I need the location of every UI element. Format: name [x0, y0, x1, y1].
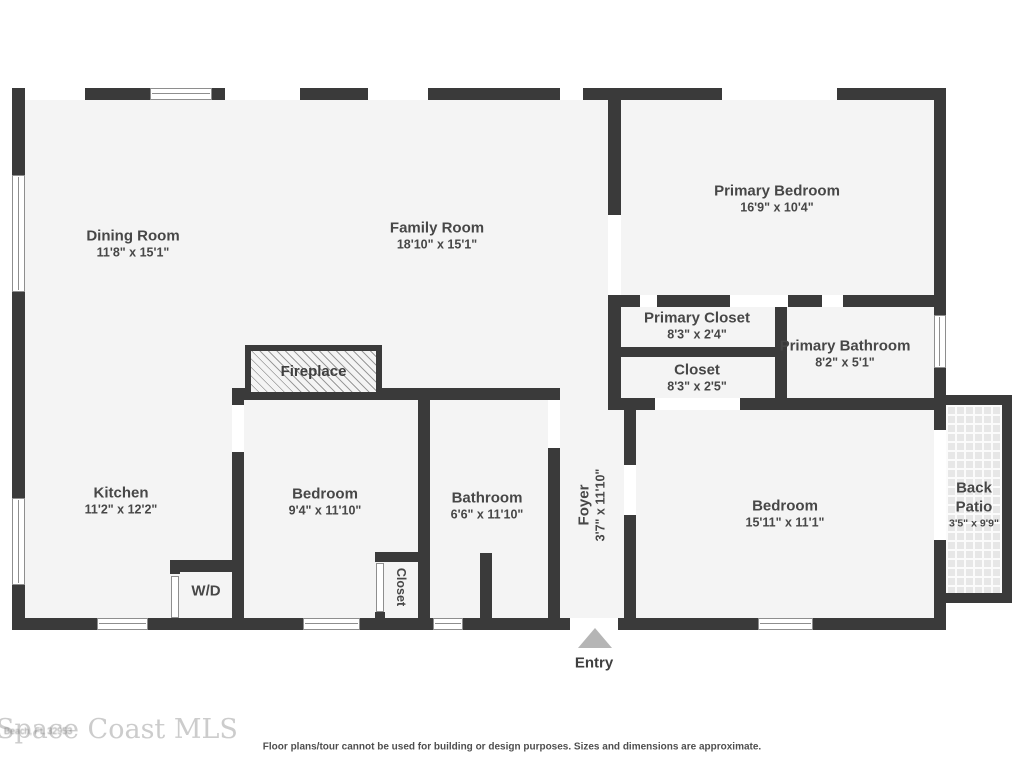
- floor-plan: Fireplace Dining Room 11'8" x 15'1" Fami…: [0, 0, 1024, 768]
- room-label-hall-closet: Closet 8'3" x 2'5": [667, 361, 727, 395]
- wall: [463, 618, 570, 630]
- wall: [624, 515, 636, 618]
- window: [303, 618, 360, 630]
- room-label-bathroom: Bathroom 6'6" x 11'10": [451, 489, 524, 523]
- wall: [360, 618, 433, 630]
- window: [150, 88, 212, 100]
- small-closet-label: Closet: [393, 568, 409, 606]
- wall: [608, 100, 621, 215]
- entry-arrow-icon: [578, 628, 612, 648]
- room-label-back-patio: Back Patio 3'5" x 9'9": [948, 479, 1000, 530]
- fireplace-label: Fireplace: [281, 363, 347, 380]
- door-opening: [640, 295, 657, 307]
- door-opening: [608, 215, 621, 295]
- wall: [608, 347, 787, 357]
- wall: [12, 292, 25, 498]
- door-opening: [548, 398, 560, 448]
- window: [12, 175, 25, 292]
- window: [934, 315, 946, 368]
- window: [758, 618, 813, 630]
- wall: [934, 540, 946, 630]
- door-opening: [232, 405, 244, 452]
- wall: [1002, 395, 1012, 603]
- wall: [148, 618, 303, 630]
- wall: [934, 88, 946, 315]
- wall: [232, 388, 244, 405]
- wall: [813, 618, 946, 630]
- wall: [618, 618, 758, 630]
- wall: [657, 295, 730, 307]
- wall: [788, 295, 822, 307]
- room-label-kitchen: Kitchen 11'2" x 12'2": [85, 484, 158, 518]
- window: [433, 618, 463, 630]
- door-opening: [655, 398, 740, 410]
- room-label-primary-bathroom: Primary Bathroom 8'2" x 5'1": [780, 337, 911, 371]
- door-opening: [730, 295, 788, 307]
- wall: [12, 618, 97, 630]
- room-label-primary-closet: Primary Closet 8'3" x 2'4": [644, 309, 750, 343]
- wall: [740, 398, 946, 410]
- wall: [480, 553, 492, 618]
- room-label-bedroom2: Bedroom 9'4" x 11'10": [289, 485, 362, 519]
- fireplace: Fireplace: [245, 345, 382, 398]
- wall: [428, 88, 560, 100]
- wall: [837, 88, 946, 100]
- wd-label: W/D: [191, 582, 220, 599]
- wall: [85, 88, 150, 100]
- wall: [170, 560, 180, 574]
- wall: [170, 560, 244, 572]
- window: [12, 498, 25, 585]
- room-label-family: Family Room 18'10" x 15'1": [390, 219, 484, 253]
- door-leaf: [376, 563, 384, 612]
- wall: [548, 448, 560, 618]
- room-label-foyer: Foyer 3'7" x 11'10": [575, 469, 609, 542]
- room-label-primary-bedroom: Primary Bedroom 16'9" x 10'4": [714, 182, 840, 216]
- door-opening: [822, 295, 843, 307]
- wall: [12, 88, 25, 175]
- wall: [375, 552, 385, 562]
- wall: [418, 388, 430, 618]
- wall: [583, 88, 722, 100]
- wall: [843, 295, 946, 307]
- entry-label: Entry: [575, 655, 613, 672]
- window: [97, 618, 148, 630]
- room-label-bedroom3: Bedroom 15'11" x 11'1": [746, 497, 825, 531]
- wall: [946, 593, 1012, 603]
- door-opening: [624, 465, 636, 515]
- wall: [232, 452, 244, 618]
- wall: [624, 398, 636, 465]
- door-leaf: [171, 576, 179, 618]
- address-overlay: Beach, FL 32953: [4, 726, 72, 736]
- wall: [375, 612, 385, 618]
- disclaimer: Floor plans/tour cannot be used for buil…: [263, 742, 761, 753]
- room-label-dining: Dining Room 11'8" x 15'1": [86, 227, 179, 261]
- wall: [212, 88, 225, 100]
- wall: [300, 88, 368, 100]
